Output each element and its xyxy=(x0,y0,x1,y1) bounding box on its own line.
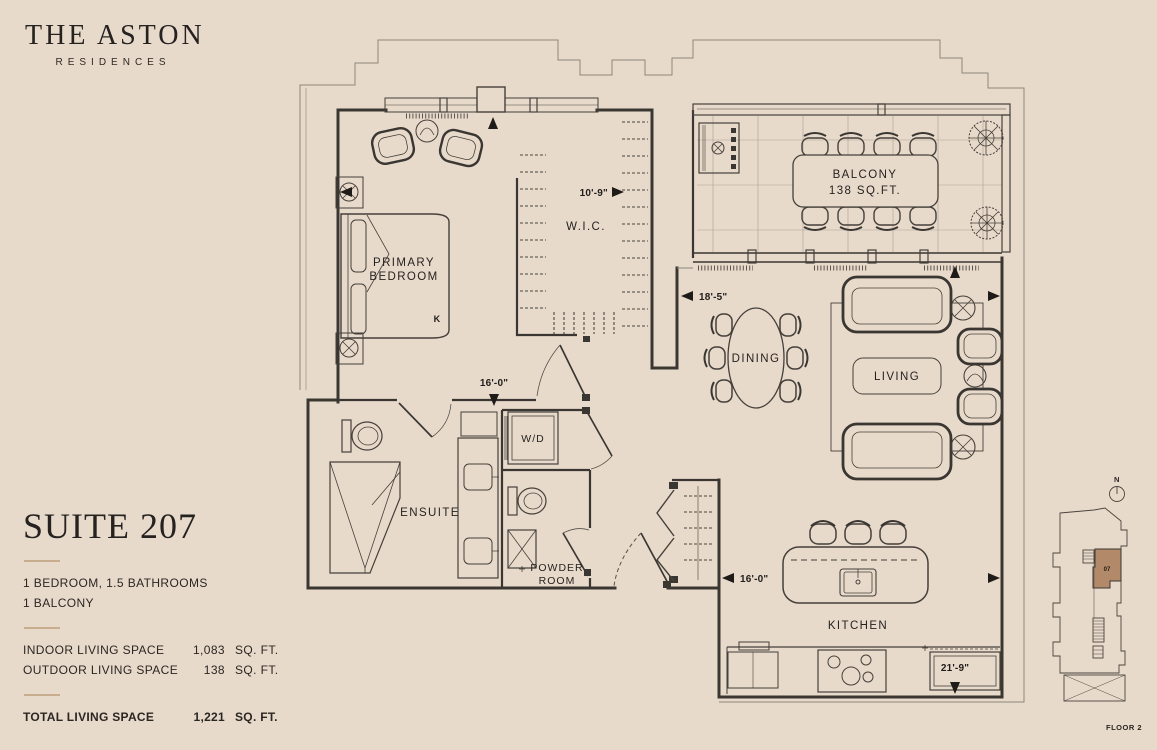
sliding-door-band xyxy=(693,250,1002,268)
dining-chair xyxy=(712,314,733,336)
suite-feature-balcony: 1 BALCONY xyxy=(23,593,281,613)
accent-chair xyxy=(958,329,1002,364)
divider xyxy=(24,627,60,629)
spec-row-total: TOTAL LIVING SPACE 1,221 SQ. FT. xyxy=(23,707,281,727)
balcony-chair xyxy=(874,133,900,156)
room-label-powder: POWDER xyxy=(530,562,583,574)
floor-lamp xyxy=(951,435,975,459)
balcony-chair xyxy=(802,133,828,156)
divider xyxy=(24,560,60,562)
walk-in-closet: W.I.C. xyxy=(520,122,648,334)
room-label-living: LIVING xyxy=(874,371,920,383)
brand-name: THE ASTON xyxy=(25,20,201,52)
kitchen-island xyxy=(783,547,928,603)
planter xyxy=(971,207,1003,239)
spec-value: 1,083 xyxy=(179,640,225,660)
building-footprint: 07 xyxy=(1053,508,1127,701)
spec-unit: SQ. FT. xyxy=(225,640,281,660)
dining-chair xyxy=(787,347,808,369)
bedroom-window xyxy=(385,87,598,116)
bbq-grill xyxy=(699,123,739,173)
sofa xyxy=(843,424,951,479)
washer-dryer: W/D xyxy=(505,412,558,464)
powder-room: POWDER ROOM xyxy=(508,487,584,587)
toilet xyxy=(508,487,546,515)
spec-value: 1,221 xyxy=(179,707,225,727)
primary-bedroom: K PRIMARY BEDROOM xyxy=(336,120,484,364)
brand-tagline: RESIDENCES xyxy=(25,57,201,68)
spec-value: 138 xyxy=(179,660,225,680)
sofa xyxy=(843,277,951,332)
ensuite: ENSUITE xyxy=(330,412,499,578)
room-label-wd: W/D xyxy=(521,433,544,445)
room-label-ensuite: ENSUITE xyxy=(400,507,460,519)
brand-logo: THE ASTON RESIDENCES xyxy=(25,20,201,68)
room-label-primary-bedroom: BEDROOM xyxy=(369,271,438,283)
dim-great-room-depth: 21'-9" xyxy=(941,663,969,674)
dim-bedroom-depth: 16'-0" xyxy=(480,378,508,389)
floor-plan: K PRIMARY BEDROOM W.I.C. xyxy=(295,18,1050,718)
building-key-plan: N 07 FLOOR 2 xyxy=(1047,460,1152,750)
spec-label: INDOOR LIVING SPACE xyxy=(23,640,179,660)
entry-closet xyxy=(657,482,712,583)
dining-chair xyxy=(780,380,801,402)
suite-info-panel: SUITE 207 1 BEDROOM, 1.5 BATHROOMS 1 BAL… xyxy=(23,506,281,727)
bed-size-label: K xyxy=(434,314,441,324)
spec-row-indoor: INDOOR LIVING SPACE 1,083 SQ. FT. xyxy=(23,640,281,660)
balcony-chair xyxy=(910,133,936,156)
balcony-chair xyxy=(874,207,900,230)
doors xyxy=(399,336,671,588)
room-label-kitchen: KITCHEN xyxy=(828,620,888,632)
room-label-balcony: 138 SQ.FT. xyxy=(829,185,901,197)
bar-stool xyxy=(810,521,836,544)
bedroom-chair xyxy=(370,126,416,166)
spec-unit: SQ. FT. xyxy=(225,707,281,727)
spec-row-outdoor: OUTDOOR LIVING SPACE 138 SQ. FT. xyxy=(23,660,281,680)
range xyxy=(818,650,886,692)
suite-title: SUITE 207 xyxy=(23,506,281,546)
planter xyxy=(969,121,1003,155)
balcony-table xyxy=(793,155,938,207)
room-label-wic: W.I.C. xyxy=(566,221,606,233)
dim-kitchen-width: 16'-0" xyxy=(740,574,768,585)
balcony-chair xyxy=(838,207,864,230)
vanity xyxy=(458,412,499,578)
room-label-dining: DINING xyxy=(732,353,781,365)
shower xyxy=(330,462,400,573)
balcony-chair xyxy=(802,207,828,230)
north-compass: N xyxy=(1110,475,1125,502)
spec-label: OUTDOOR LIVING SPACE xyxy=(23,660,179,680)
side-table xyxy=(416,120,438,142)
spec-label: TOTAL LIVING SPACE xyxy=(23,707,179,727)
bedroom-chair xyxy=(438,128,485,169)
bar-stool xyxy=(880,521,906,544)
floor-lamp xyxy=(951,296,975,320)
divider xyxy=(24,694,60,696)
suite-feature-bed-bath: 1 BEDROOM, 1.5 BATHROOMS xyxy=(23,573,281,593)
dining-chair xyxy=(780,314,801,336)
north-label: N xyxy=(1114,475,1120,484)
balcony: BALCONY 138 SQ.FT. xyxy=(699,121,1003,239)
dining-chair xyxy=(712,380,733,402)
room-label-primary-bedroom: PRIMARY xyxy=(373,257,435,269)
dining-chair xyxy=(705,347,726,369)
unit-07-label: 07 xyxy=(1104,567,1111,573)
dim-living-width: 18'-5" xyxy=(699,292,727,303)
dim-bedroom-width: 10'-9" xyxy=(580,188,608,199)
dining-area: DINING xyxy=(705,308,808,408)
room-label-balcony: BALCONY xyxy=(833,169,898,181)
balcony-chair xyxy=(910,207,936,230)
room-label-powder: ROOM xyxy=(539,575,576,587)
floor-label: FLOOR 2 xyxy=(1106,723,1142,732)
bar-stool xyxy=(845,521,871,544)
living-area: LIVING xyxy=(831,277,1002,479)
spec-unit: SQ. FT. xyxy=(225,660,281,680)
toilet xyxy=(342,420,382,452)
accent-chair xyxy=(958,389,1002,424)
balcony-chair xyxy=(838,133,864,156)
